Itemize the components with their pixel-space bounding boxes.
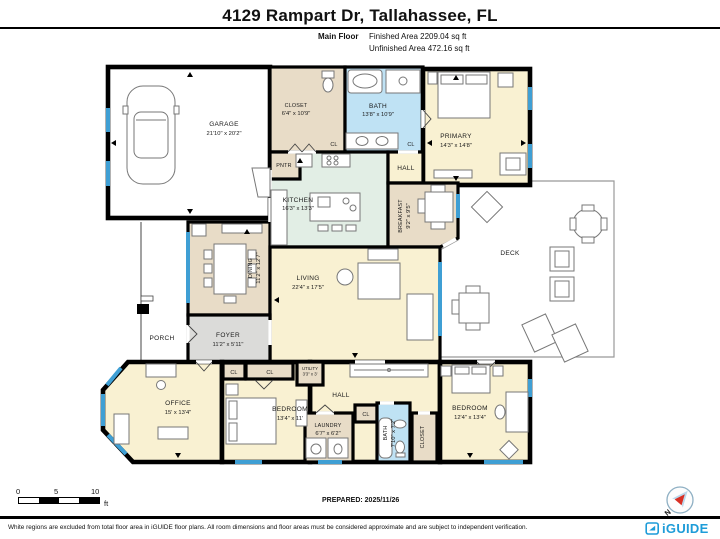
- brand-logo: iGUIDE: [645, 521, 709, 536]
- cl-hall-label: CL: [362, 412, 369, 418]
- bedroom-right-dims: 12'4" x 13'4": [454, 415, 486, 421]
- breakfast-dims: 9'2" x 9'5": [406, 203, 412, 228]
- bath-top-dims: 13'8" x 10'9": [362, 112, 394, 118]
- scale-unit: ft: [104, 499, 108, 508]
- utility-label: UTILITY: [302, 366, 318, 371]
- dining-label: DINING: [248, 258, 254, 278]
- dining-dims: 11'2" x 12'7": [256, 252, 262, 283]
- bath-bottom-label: BATH: [383, 426, 389, 441]
- living-label: LIVING: [296, 275, 319, 282]
- closet-bottom-label: CLOSET: [420, 425, 426, 448]
- kitchen-dims: 16'3" x 13'3": [282, 206, 314, 212]
- cl-foyer2-label: CL: [266, 370, 273, 376]
- pantry-label: PNTR: [276, 163, 291, 169]
- footer-divider: [0, 516, 720, 519]
- porch-label: PORCH: [150, 335, 175, 342]
- closet-top-room: [270, 67, 345, 152]
- prepared-date: PREPARED: 2025/11/26: [322, 497, 399, 504]
- bedroom-left-label: BEDROOM: [272, 406, 308, 413]
- scale-tick-10: 10: [91, 487, 99, 496]
- scale-tick-0: 0: [16, 487, 20, 496]
- office-dims: 15' x 13'4": [165, 410, 192, 416]
- breakfast-label: BREAKFAST: [398, 199, 404, 233]
- kitchen-label: KITCHEN: [283, 197, 314, 204]
- brand-logo-text: iGUIDE: [662, 521, 709, 536]
- foyer-dims: 11'2" x 5'11": [213, 342, 244, 348]
- utility-dims: 3'3" x 3': [303, 372, 318, 377]
- cl-bath-right-label: CL: [407, 142, 414, 148]
- garage-dims: 21'10" x 20'2": [206, 131, 241, 137]
- deck-label: DECK: [500, 250, 520, 257]
- car-icon: [123, 86, 179, 184]
- primary-label: PRIMARY: [440, 133, 472, 140]
- cl-foyer1-label: CL: [230, 370, 237, 376]
- cl-bath-left-label: CL: [330, 142, 337, 148]
- primary-dims: 14'3" x 14'8": [440, 143, 472, 149]
- garage-label: GARAGE: [209, 121, 239, 128]
- closet-top-label: CLOSET: [285, 103, 308, 109]
- disclaimer-text: White regions are excluded from total fl…: [8, 524, 608, 531]
- laundry-label: LAUNDRY: [314, 423, 341, 429]
- bath-top-label: BATH: [369, 103, 387, 110]
- bedroom-left-dims: 13'4" x 11': [277, 416, 303, 422]
- floor-plan-page: 4129 Rampart Dr, Tallahassee, FL Main Fl…: [0, 0, 720, 539]
- living-dims: 22'4" x 17'5": [292, 285, 324, 291]
- hall-bottom-label: HALL: [332, 392, 350, 399]
- bedroom-right-label: BEDROOM: [452, 405, 488, 412]
- foyer-label: FOYER: [216, 332, 240, 339]
- brand-logo-icon: [645, 521, 660, 536]
- bath-bottom-dims: 7'10" x 7'2": [391, 419, 397, 448]
- hall-closet-rod: [350, 364, 428, 377]
- office-label: OFFICE: [165, 400, 191, 407]
- laundry-dims: 6'7" x 6'2": [315, 431, 340, 437]
- floor-plan-drawing: GARAGE 21'10" x 20'2" CLOSET 6'4" x 10'9…: [0, 0, 720, 539]
- hall-top-label: HALL: [397, 165, 415, 172]
- scale-bar-segments: [18, 497, 100, 504]
- scale-tick-5: 5: [54, 487, 58, 496]
- closet-top-dims: 6'4" x 10'9": [282, 111, 311, 117]
- compass-icon: N: [662, 484, 698, 520]
- scale-bar: 0 5 10 ft: [18, 487, 128, 504]
